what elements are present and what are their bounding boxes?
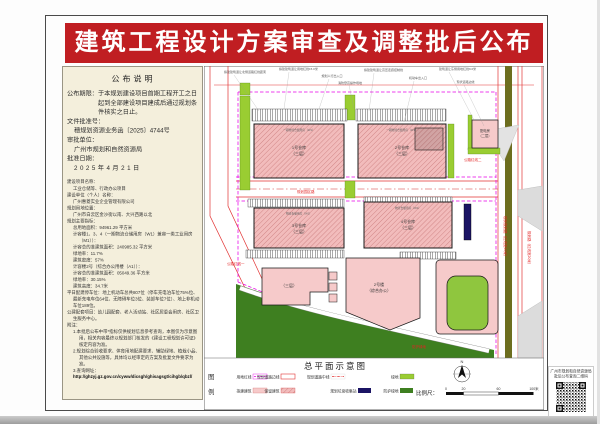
block2-label: 2号仓库 — [395, 144, 409, 150]
project-detail-list: 建设项目名称： 工业仓储等、行政办公项目 建设单位（个人）名称： 广州惠菱实业企… — [67, 179, 200, 374]
block1-label: 1号仓库 — [292, 144, 306, 150]
site-plan-map: 拟建建筑退让北侧道路红线距离 拟建建筑退让用地红线15.0米 规划人行出入口 拟… — [204, 66, 544, 410]
legend-swatch-protective-green — [400, 388, 413, 393]
scale-tick: 20 — [462, 387, 466, 391]
legend-label: 拟建建筑 — [236, 389, 251, 394]
legend-label: 绿地 — [391, 375, 399, 380]
annotation-text: 消防登高操作场地 — [338, 80, 362, 85]
legend-label: 规划道路中线 — [307, 375, 330, 380]
block-top-label: 一期物流仓储用房（W1） — [283, 128, 315, 132]
legend-swatch-green — [400, 374, 414, 379]
waste-station — [464, 204, 471, 240]
legend-label: 用地红线 — [236, 375, 251, 380]
block3-sub: （三层） — [291, 228, 307, 234]
road-label: 现状规划路（红线宽40米） — [503, 216, 508, 258]
office-label: 2号楼 — [374, 281, 384, 287]
north-label: N — [461, 359, 464, 364]
qr-block: 广州市规划和自然资源局 批后公布查询二维码 — [548, 366, 594, 418]
file-number-label: 文件批准号： — [67, 117, 200, 126]
office-sub: （综合办公） — [367, 287, 391, 293]
annotation-text: 现状道路边线 — [457, 79, 475, 84]
legend-label: 防护绿地 — [383, 389, 398, 394]
detail-line: 计容楼1、3、4（一期物流仓储用房（W1）兼容一类工业用房（M1））： — [67, 231, 200, 244]
legend-swatch-retained — [281, 388, 295, 393]
block-top-label: 物流仓储用房（W1） — [286, 212, 312, 216]
approval-date-label: 批准日期： — [67, 154, 200, 163]
qr-caption-1: 广州市规划和自然资源局 — [550, 369, 592, 374]
annotation-text: 建筑退让东侧用地红线9.0米 — [439, 66, 476, 71]
detail-line: 平日配建停车位：地上机动车总共807位（停车充电泊车位75%位、最新充电车位64… — [67, 289, 200, 309]
qr-code-image — [556, 382, 586, 412]
scale-tick: 60 — [497, 387, 501, 391]
notice-title: 公布说明 — [67, 72, 200, 84]
legend-swatch-road-edge — [281, 374, 295, 379]
block1-sub: （三层） — [291, 150, 307, 156]
scan-shadow-bottom — [0, 416, 600, 424]
block-top-label: 一期物流仓储用房（W1） — [386, 128, 418, 132]
road-label: 公路红线一 — [227, 261, 245, 266]
block4-label: 4号仓库 — [401, 218, 415, 224]
road-label: 公路红线二 — [464, 157, 482, 162]
annotation-text: 机动车出入口 — [409, 75, 427, 80]
utility-sub: （二层） — [479, 133, 492, 138]
courtyard-green — [447, 276, 488, 330]
annotation-text: 拟建建筑退让用地红线15.0米 — [279, 66, 318, 71]
qr-caption-2: 批后公布查询二维码 — [554, 374, 588, 379]
announcement-sheet: { "page": { "banner_title": "建筑工程设计方案审查及… — [0, 0, 600, 424]
title-banner: 建筑工程设计方案审查及调整批后公布 — [65, 23, 543, 63]
legend-swatch-waste — [358, 388, 371, 393]
scale-tick: 100米 — [529, 386, 539, 391]
block4-sub: （三层） — [400, 224, 416, 230]
road-label: 规划路（红线宽20米） — [527, 231, 532, 266]
detail-line: 2.规划综合验收要求、体育用地配建要求、辅助绿地、植栽小品、其他公共设施等，具体… — [67, 348, 200, 368]
road-median-strip — [505, 66, 512, 358]
block3-label: 3号仓库 — [292, 222, 306, 228]
file-number: 穗规划资源业务函〔2025〕4744号 — [67, 126, 200, 135]
annotation-text: 规划人行出入口 — [322, 73, 343, 78]
block2-sub: （三层） — [394, 150, 410, 156]
legend-panel-char1: 图 — [208, 373, 215, 381]
scale-tick: 0 — [445, 387, 447, 391]
detail-line: 公建配套项目：幼儿园配套、老人活动站、社区居委会用房、社区卫生服务中心。 — [67, 309, 200, 322]
notice-panel: 公布说明 公布期限：于本规划建设项目首期工程开工之日起到全部建设项目建成后通过规… — [62, 66, 203, 400]
annotation-text: 拟建建筑退让高压走廊控制线 — [364, 67, 403, 72]
legend-label: 规划垃圾收集站 — [330, 389, 357, 394]
annotation-text: 拟建建筑退让北侧道路红线距离 — [224, 69, 266, 74]
publication-period: 公布期限：于本规划建设项目首期工程开工之日起到全部建设项目建成后通过规划条件核实… — [67, 89, 200, 117]
approval-date: 2025年4月21日 — [67, 163, 200, 172]
block-top-label: 物流仓储用房（W1） — [395, 206, 421, 210]
legend-label: 保留建筑 — [264, 389, 279, 394]
utility-label: 配电房 — [480, 128, 490, 133]
notice-body: 公布期限：于本规划建设项目首期工程开工之日起到全部建设项目建成后通过规划条件核实… — [67, 89, 200, 173]
green-label: 防护绿地 — [412, 344, 426, 349]
legend-label: 规划道路边线 — [257, 375, 280, 380]
page-title: 建筑工程设计方案审查及调整批后公布 — [75, 29, 534, 56]
legend-title: 总平面示意图 — [304, 361, 367, 371]
detail-line: 1.本批后公布中带*指标仅供规划信息参考查询，本图仅为示意图用，相关内容最终以规… — [67, 328, 200, 348]
road-label: 规划园区路 — [297, 189, 315, 194]
query-url-link[interactable]: http://ghzyj.gz.gov.cn/cyww/dicsgh/ghisa… — [67, 374, 200, 379]
authority-label: 审批单位： — [67, 136, 200, 145]
authority: 广州市规划和自然资源局 — [67, 145, 200, 154]
p1-label: （三层） — [281, 282, 297, 288]
